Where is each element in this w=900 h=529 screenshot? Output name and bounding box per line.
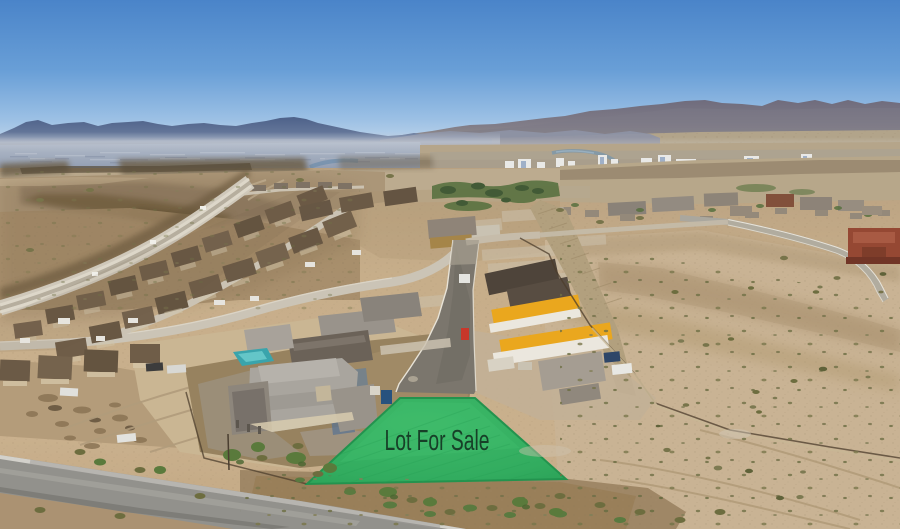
svg-text:Lot For Sale: Lot For Sale [385,425,490,457]
